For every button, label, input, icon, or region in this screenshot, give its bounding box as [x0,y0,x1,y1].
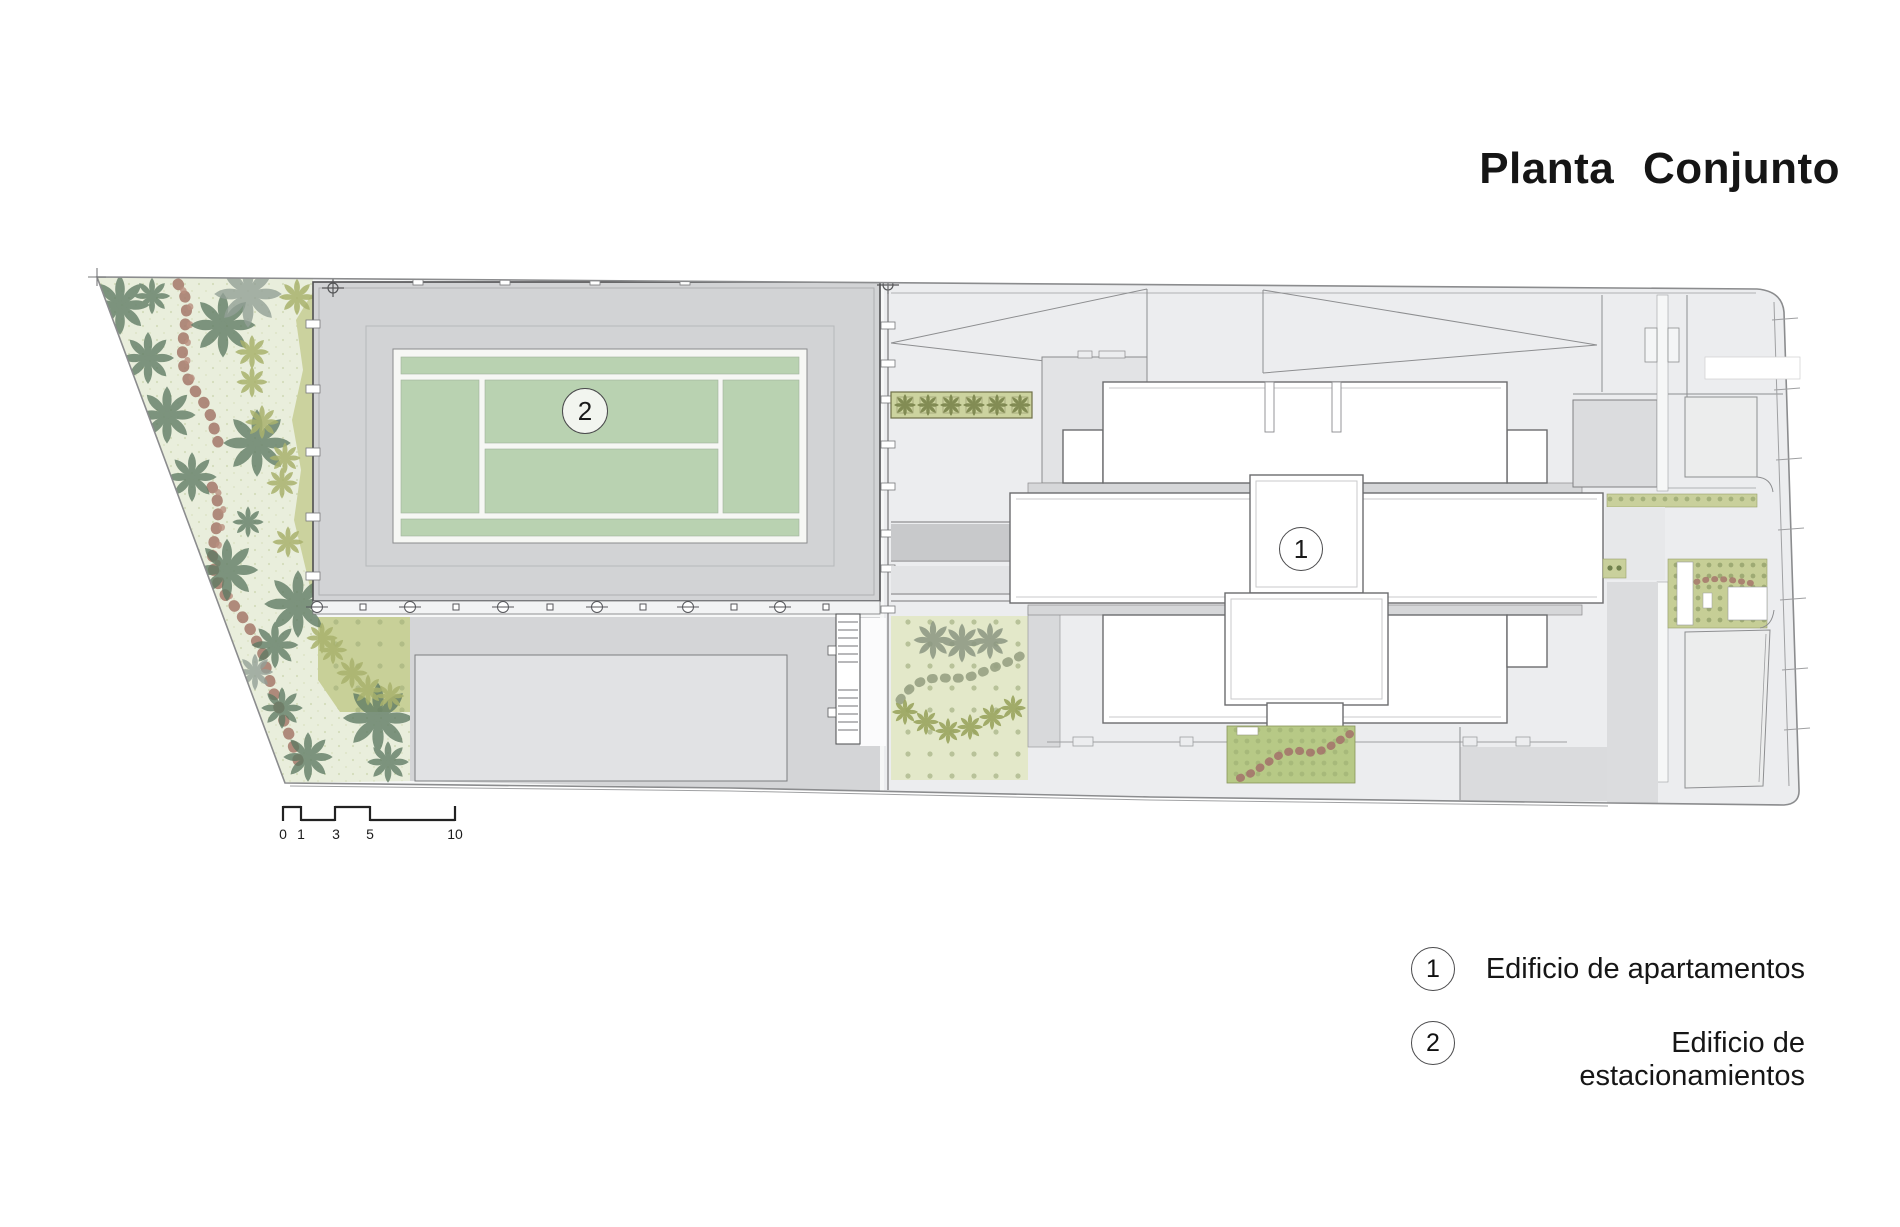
utility-block [1573,400,1657,487]
access-road-bands [891,522,1010,601]
parking-stall [1645,328,1657,362]
scale-tick-0: 0 [279,826,287,842]
east-hedge-row [1607,494,1757,507]
building-2-marker: 2 [562,388,608,434]
parking-stall [1668,328,1679,362]
legend-label-parking: Edificio de estacionamientos [1445,1027,1805,1093]
tower-garden [1227,726,1355,783]
hedge-planter [891,392,1032,418]
small-planter [1603,559,1626,578]
central-garden [891,616,1028,780]
south-parking-apron [410,617,886,791]
legend-label-apartments: Edificio de apartamentos [1445,953,1805,986]
parking-building-roof [306,276,899,614]
scale-bar [283,806,455,821]
building-1-marker: 1 [1279,527,1323,571]
east-parking-lot [1685,630,1770,788]
tennis-court [393,349,807,543]
driveway-strip [1657,582,1668,782]
scale-tick-10: 10 [447,826,463,842]
driveway-strip [1657,295,1668,491]
entrance-gap [1705,357,1800,379]
colonnade [306,601,880,614]
scale-tick-1: 1 [297,826,305,842]
east-garden [1668,559,1767,628]
garden-edge-walk [1028,607,1060,747]
scale-tick-5: 5 [366,826,374,842]
scale-tick-3: 3 [332,826,340,842]
page-title: Planta Conjunto [1150,144,1840,194]
